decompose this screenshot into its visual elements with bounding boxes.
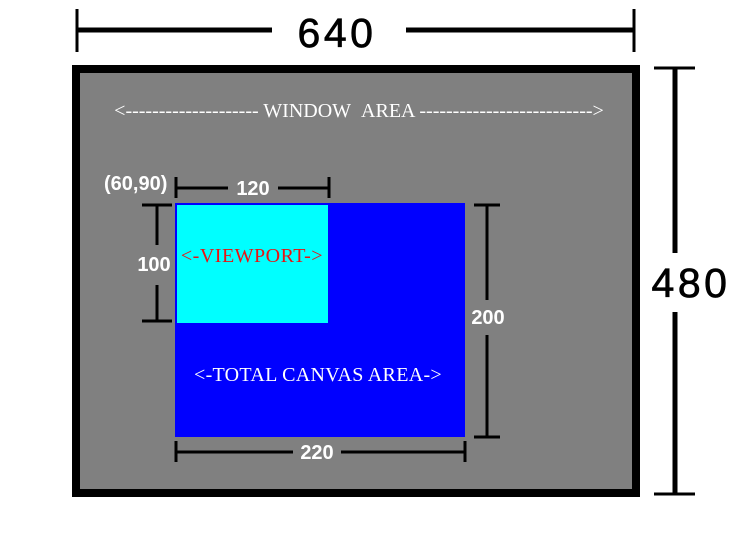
svg-text:640: 640 <box>298 10 377 56</box>
svg-text:100: 100 <box>137 254 170 276</box>
svg-text:<-TOTAL CANVAS AREA->: <-TOTAL CANVAS AREA-> <box>194 364 442 386</box>
svg-text:<-VIEWPORT->: <-VIEWPORT-> <box>181 245 323 267</box>
svg-text:(60,90): (60,90) <box>104 173 167 195</box>
svg-text:480: 480 <box>652 260 731 306</box>
svg-text:120: 120 <box>236 178 269 200</box>
svg-text:200: 200 <box>471 307 504 329</box>
svg-text:220: 220 <box>300 442 333 464</box>
svg-text:<-------------------- WINDOW: <-------------------- WINDOW AREA ------… <box>114 100 604 122</box>
